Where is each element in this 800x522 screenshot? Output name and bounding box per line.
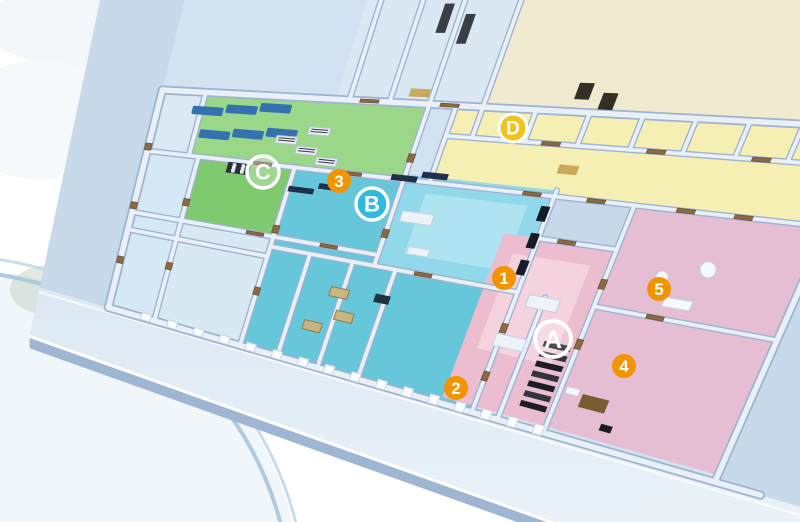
window-stub	[323, 364, 335, 375]
tancab-furniture	[557, 164, 580, 175]
door	[646, 149, 666, 154]
marker-A: A	[535, 321, 571, 357]
tancab-furniture	[408, 88, 431, 97]
marker-1: 1	[492, 266, 516, 290]
marker-label: A	[544, 326, 562, 354]
round-furniture	[700, 262, 716, 278]
marker-4: 4	[612, 354, 636, 378]
marker-label: 1	[499, 269, 508, 288]
marker-3: 3	[327, 169, 351, 193]
door	[144, 143, 152, 150]
bed-furniture	[234, 130, 263, 138]
door	[182, 198, 190, 206]
marker-label: 3	[334, 172, 343, 191]
marker-5: 5	[647, 277, 671, 301]
marker-label: 2	[451, 379, 460, 398]
bed-furniture	[200, 131, 229, 139]
marker-D: D	[499, 114, 527, 142]
marker-label: 5	[654, 280, 663, 299]
marker-2: 2	[444, 376, 468, 400]
marker-B: B	[356, 188, 388, 220]
bed-furniture	[193, 107, 222, 114]
marker-label: 4	[619, 357, 629, 376]
marker-label: B	[364, 192, 380, 217]
door	[165, 262, 173, 270]
door	[440, 103, 460, 107]
window-stub	[349, 372, 361, 383]
door	[360, 99, 380, 103]
floorplan-illustration: C3BD1A245	[0, 0, 800, 522]
floorplan-canvas: C3BD1A245	[0, 0, 800, 522]
bed-furniture	[261, 105, 291, 113]
marker-C: C	[247, 156, 279, 188]
marker-label: D	[506, 119, 520, 140]
bed-furniture	[227, 106, 256, 113]
door	[117, 256, 125, 264]
marker-label: C	[255, 160, 271, 185]
door	[130, 202, 138, 210]
